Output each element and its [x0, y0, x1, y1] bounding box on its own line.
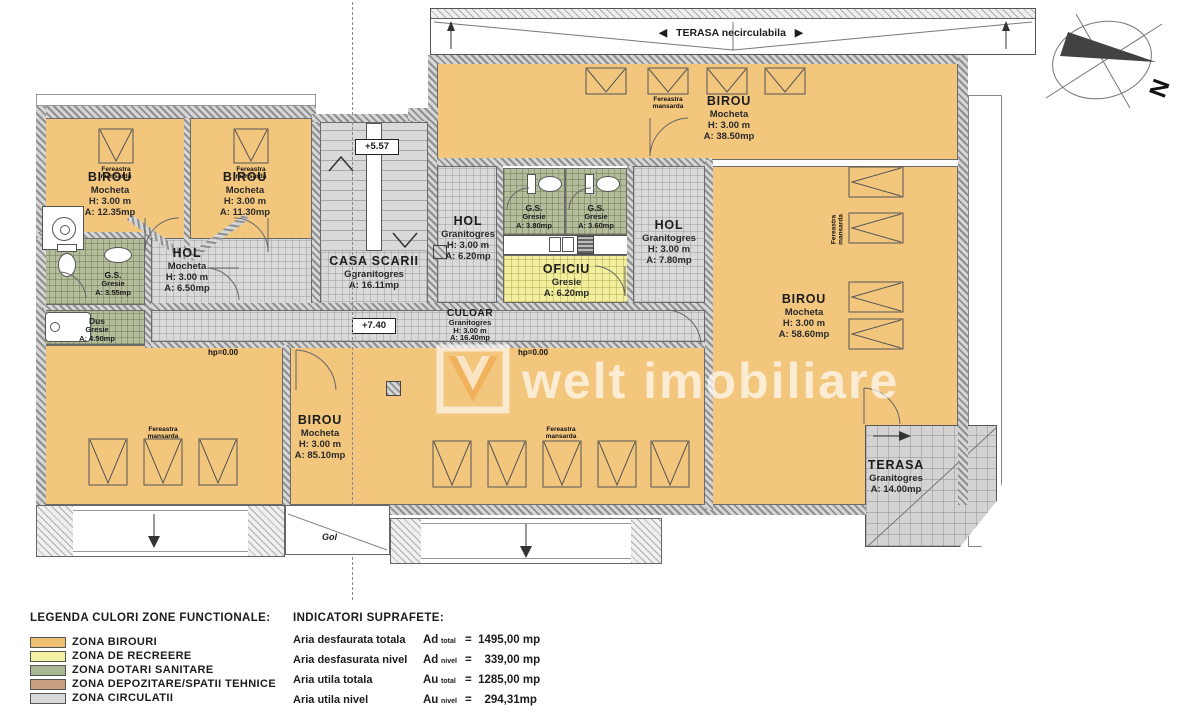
terasa-entry-arrow-icon	[873, 430, 913, 442]
mansard-window-icon	[764, 67, 806, 95]
stair-down-arrow-icon	[392, 232, 418, 248]
sink-icon	[104, 247, 132, 263]
mansard-window-icon	[542, 440, 582, 488]
down-arrow-icon	[519, 524, 533, 560]
down-arrow-icon	[147, 514, 161, 550]
label-birou-top: BIROU Mocheta H: 3.00 m A: 38.50mp	[677, 94, 781, 142]
mansard-window-icon	[848, 166, 904, 198]
arrow-right-icon: ▶	[795, 27, 803, 39]
label-gs-left: G.S. Gresie A: 3.55mp	[82, 270, 144, 298]
label-birou-tl2: BIROU Mocheta H: 3.00 m A: 11.30mp	[193, 170, 297, 218]
mansard-window-icon	[88, 438, 128, 486]
label-hol-center: HOL Granitogres H: 3.00 m A: 6.20mp	[421, 214, 515, 262]
label-gs-center-right: G.S. Gresie A: 3.60mp	[567, 203, 625, 231]
door-arc	[665, 308, 703, 346]
mansard-window-icon	[487, 440, 527, 488]
terrace-top-label: ◀ TERASA necirculabila ▶	[581, 27, 881, 39]
toilet-bowl-icon	[596, 176, 620, 192]
legend-title: LEGENDA CULORI ZONE FUNCTIONALE:	[30, 612, 270, 624]
wall	[428, 55, 437, 310]
label-casa-scarii: CASA SCARII Ggranitogres A: 16.11mp	[320, 254, 428, 291]
wall	[408, 108, 438, 121]
window-caption: Fereastra mansarda	[134, 426, 192, 441]
north-letter: N	[1143, 75, 1174, 101]
mansard-window-icon	[143, 438, 183, 486]
mansard-window-icon	[706, 67, 748, 95]
label-gs-center-left: G.S. Gresie A: 3.80mp	[505, 203, 563, 231]
counter-stove-icon	[577, 236, 594, 254]
mansard-window-icon	[848, 318, 904, 350]
wall	[437, 55, 958, 64]
floor-plan-page: { "plan": { "compass": { "label": "N" },…	[0, 0, 1192, 720]
wall	[42, 305, 145, 310]
wall	[184, 118, 190, 255]
wall	[437, 158, 712, 166]
door-arc	[294, 348, 338, 392]
label-hol-left: HOL Mocheta H: 3.00 m A: 6.50mp	[140, 246, 234, 294]
label-terasa: TERASA Granitogres A: 14.00mp	[848, 458, 944, 495]
level-marker-corridor: +7.40	[352, 318, 396, 334]
mansard-window-icon	[432, 440, 472, 488]
mansard-window-icon	[848, 281, 904, 313]
mansard-window-icon	[650, 440, 690, 488]
counter-sink2-icon	[562, 237, 574, 252]
arrow-left-icon: ◀	[659, 27, 667, 39]
label-dus: Dus Gresie A: 4.50mp	[66, 316, 128, 344]
hp-label-left: hp=0.00	[208, 348, 238, 357]
legend-swatch	[30, 693, 66, 704]
gol-diagonal	[286, 506, 389, 554]
wall	[312, 114, 320, 310]
north-compass-icon: N	[1040, 8, 1190, 116]
counter-sink-icon	[549, 237, 561, 252]
indicators-title: INDICATORI SUPRAFETE:	[293, 612, 444, 624]
toilet-icon	[57, 244, 77, 252]
gol-opening: Gol	[285, 505, 390, 555]
legend-swatch	[30, 651, 66, 662]
column	[386, 381, 401, 396]
mansard-window-icon	[198, 438, 238, 486]
toilet-bowl-icon	[538, 176, 562, 192]
stair-up-arrow-icon	[328, 156, 354, 172]
mansard-window-icon	[98, 128, 134, 164]
door-arc	[232, 216, 270, 254]
roof-terrace-band: ◀ TERASA necirculabila ▶	[430, 8, 1036, 55]
mansard-window-icon	[647, 67, 689, 95]
label-birou-tl1: BIROU Mocheta H: 3.00 m A: 12.35mp	[58, 170, 162, 218]
balcony-left	[36, 505, 285, 557]
wall	[958, 55, 968, 505]
window-caption: Fereastra mansarda	[831, 199, 846, 259]
legend-swatch	[30, 679, 66, 690]
label-culoar: CULOAR Granitogres H: 3.00 m A: 16.40mp	[420, 309, 520, 342]
balcony-center	[390, 518, 662, 564]
gol-label: Gol	[322, 532, 337, 542]
mansard-window-icon	[848, 212, 904, 244]
label-birou-bottom: BIROU Mocheta H: 3.00 m A: 85.10mp	[268, 413, 372, 461]
wall	[705, 160, 713, 510]
label-oficiu: OFICIU Gresie A: 6.20mp	[505, 262, 628, 299]
watermark-logo-icon	[436, 344, 510, 416]
legend-swatch	[30, 665, 66, 676]
left-eave-strip	[36, 94, 316, 106]
legend-swatch	[30, 637, 66, 648]
level-marker-upper: +5.57	[355, 139, 399, 155]
mansard-window-icon	[597, 440, 637, 488]
window-caption: Fereastra mansarda	[532, 426, 590, 441]
wall	[36, 106, 316, 118]
mansard-window-icon	[233, 128, 269, 164]
watermark-text: welt imobiliare	[522, 352, 899, 410]
label-birou-right: BIROU Mocheta H: 3.00 m A: 58.60mp	[752, 292, 856, 340]
label-hol-right: HOL Granitogres H: 3.00 m A: 7.80mp	[625, 218, 713, 266]
mansard-window-icon	[585, 67, 627, 95]
